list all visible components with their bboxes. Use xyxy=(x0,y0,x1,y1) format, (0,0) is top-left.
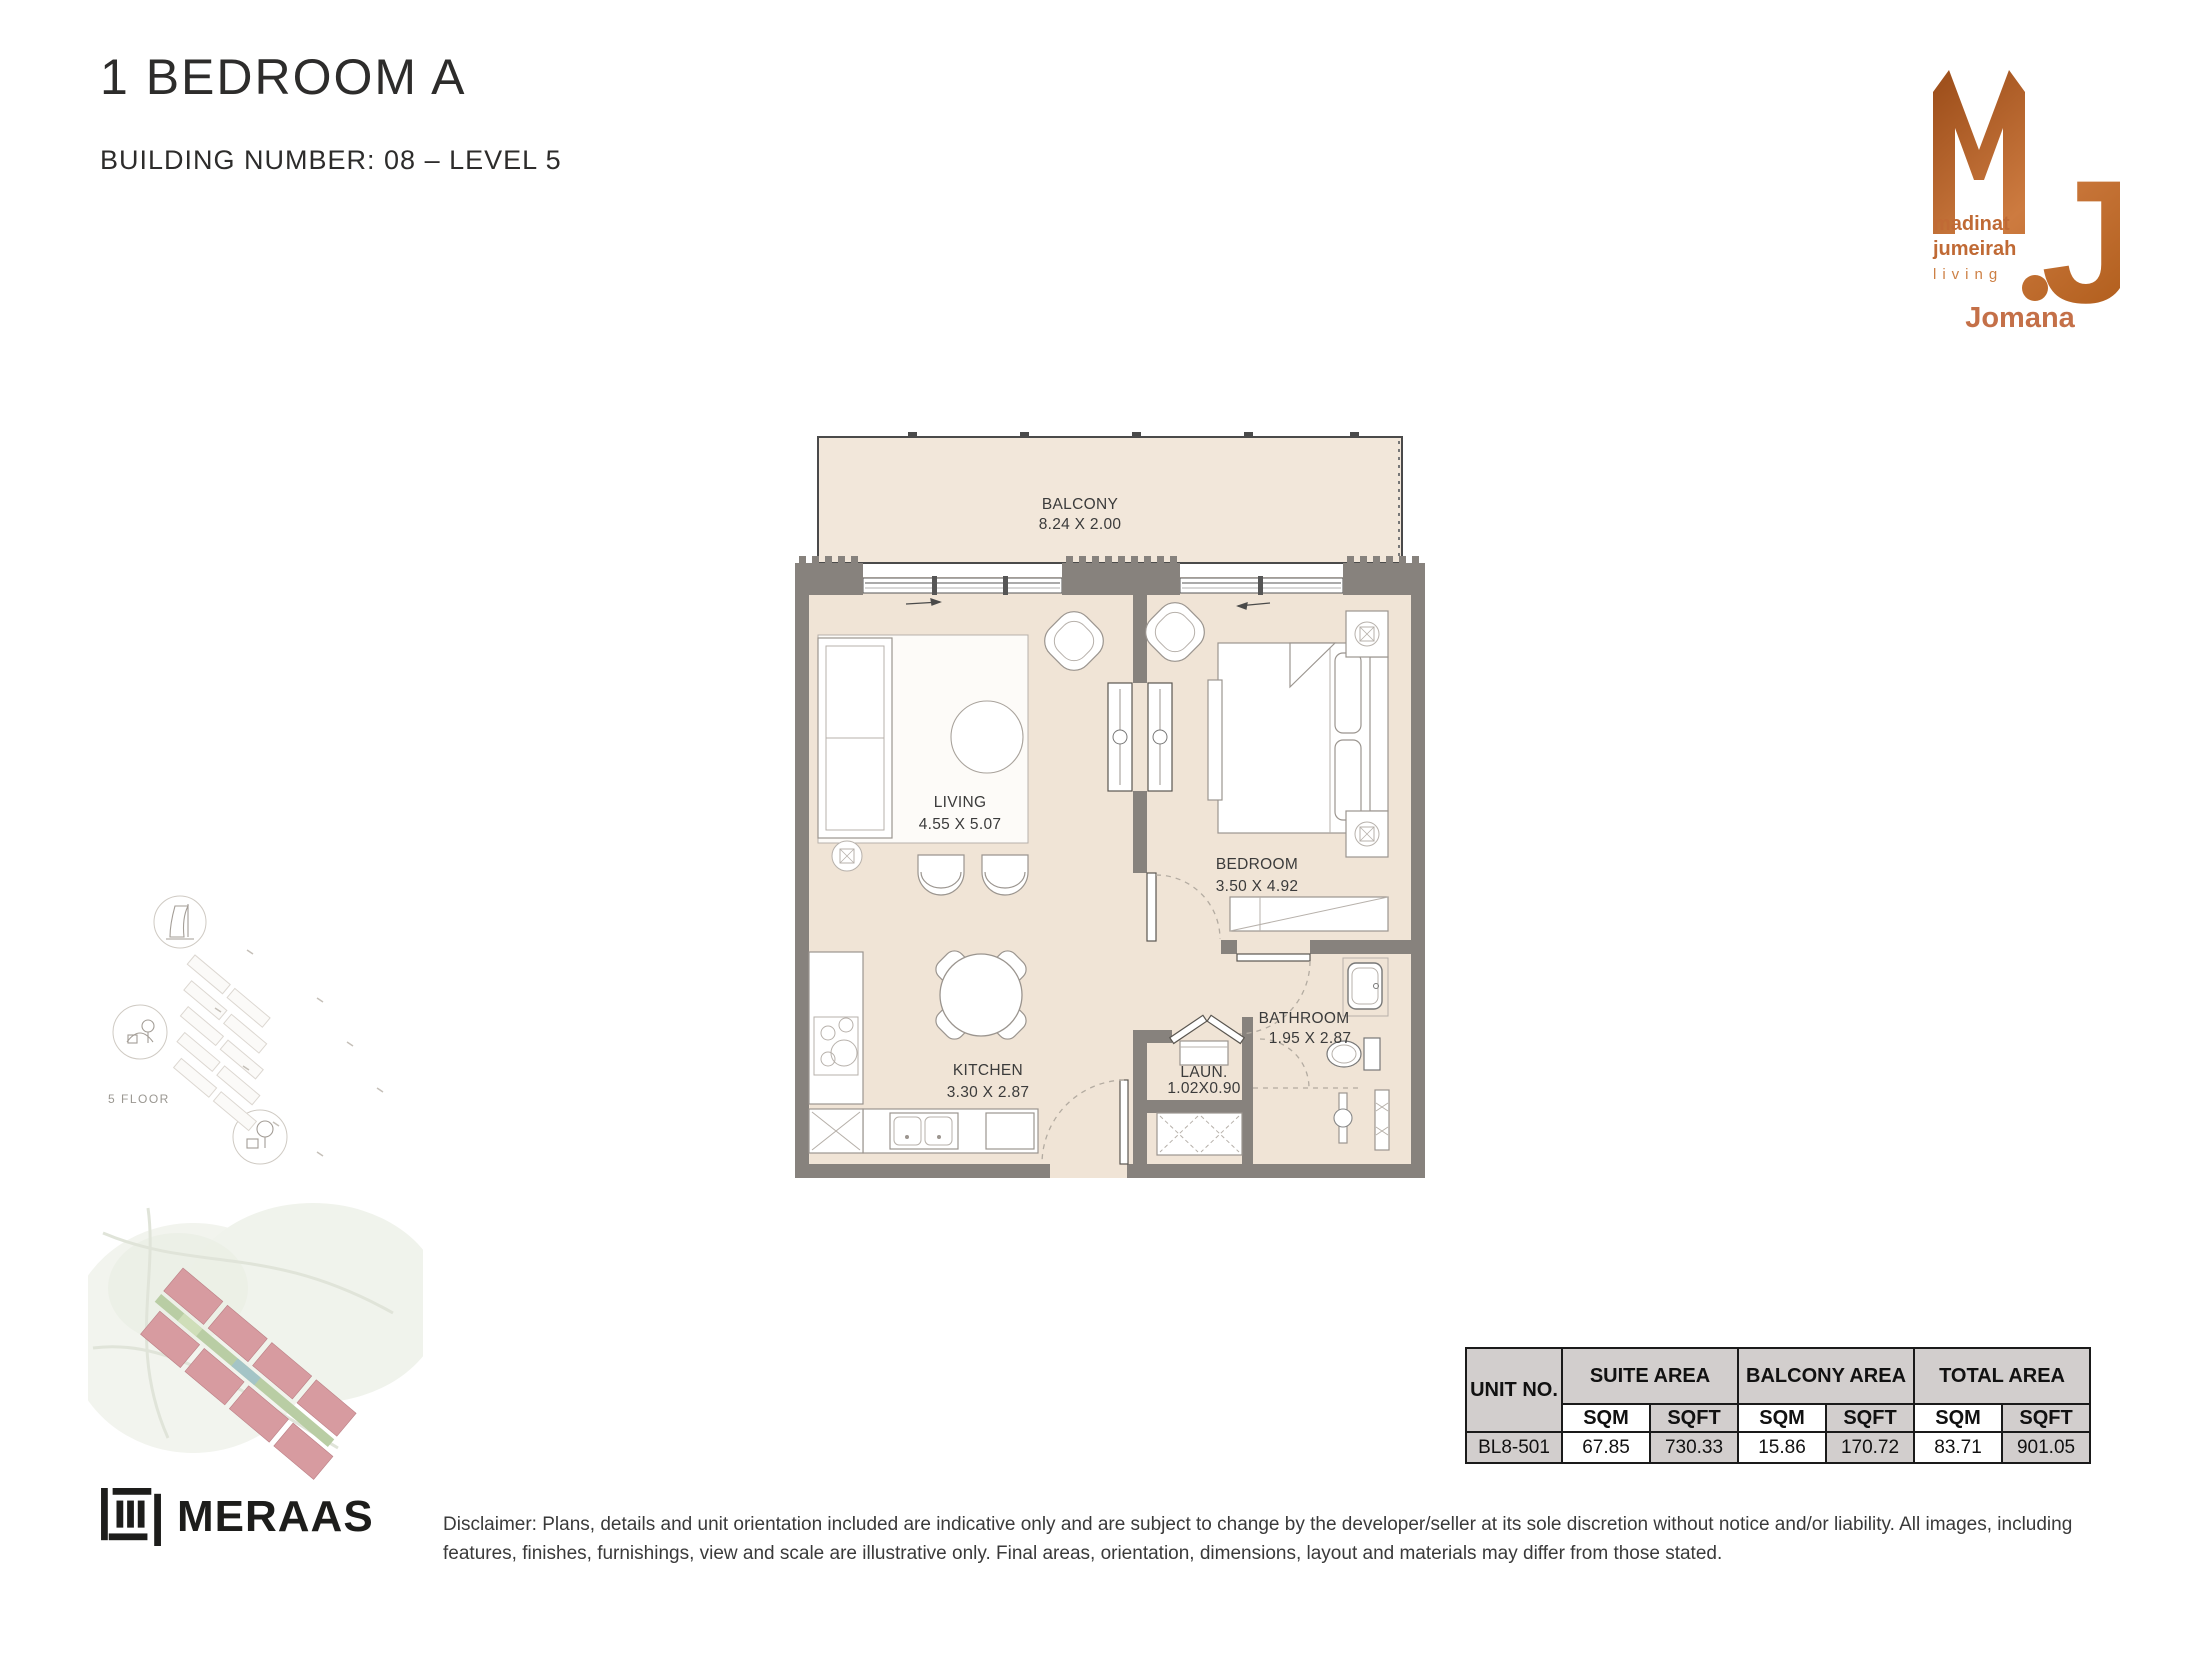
table-header-unit: UNIT NO. xyxy=(1466,1348,1562,1432)
balcony-sqft: 170.72 xyxy=(1826,1432,1914,1463)
project-name: Jomana xyxy=(1925,302,2115,335)
area-table: UNIT NO. SUITE AREA BALCONY AREA TOTAL A… xyxy=(1465,1347,2091,1464)
table-header-total: TOTAL AREA xyxy=(1914,1348,2090,1404)
table-header-balcony: BALCONY AREA xyxy=(1738,1348,1914,1404)
suite-sqm: 67.85 xyxy=(1562,1432,1650,1463)
balcony-area: BALCONY 8.24 X 2.00 xyxy=(818,432,1402,563)
table-subheader-sqft: SQFT xyxy=(2002,1404,2090,1432)
room-dims-bathroom: 1.95 X 2.87 xyxy=(1269,1030,1352,1047)
burj-al-arab-icon xyxy=(166,904,194,939)
landmark-icon xyxy=(127,1020,154,1043)
wardrobe xyxy=(1230,897,1388,931)
table-subheader-sqft: SQFT xyxy=(1826,1404,1914,1432)
table-subheader-sqm: SQM xyxy=(1738,1404,1826,1432)
unit-number: BL8-501 xyxy=(1466,1432,1562,1463)
suite-sqft: 730.33 xyxy=(1650,1432,1738,1463)
dining-table xyxy=(932,947,1030,1043)
developer-logo: MERAAS xyxy=(100,1488,374,1546)
key-plan-floor-label: 5 FLOOR xyxy=(108,1092,170,1106)
sofa xyxy=(818,638,892,838)
table-header-suite: SUITE AREA xyxy=(1562,1348,1738,1404)
table-row: BL8-501 67.85 730.33 15.86 170.72 83.71 … xyxy=(1466,1432,2090,1463)
wordmark-line-1: madinat xyxy=(1933,212,2016,237)
disclaimer-text: Disclaimer: Plans, details and unit orie… xyxy=(443,1511,2108,1568)
nightstand xyxy=(1346,611,1388,657)
washing-machine xyxy=(1157,1113,1242,1155)
developer-name: MERAAS xyxy=(177,1492,374,1542)
page-subtitle: BUILDING NUMBER: 08 – LEVEL 5 xyxy=(100,145,562,176)
brand-wordmark: madinat jumeirah living xyxy=(1933,212,2016,287)
brand-logo: J madinat jumeirah living Jomana xyxy=(1925,52,2120,352)
room-dims-bedroom: 3.50 X 4.92 xyxy=(1216,878,1299,895)
table-subheader-sqm: SQM xyxy=(1914,1404,2002,1432)
meraas-icon xyxy=(100,1488,162,1546)
nightstand xyxy=(1346,811,1388,857)
coffee-table xyxy=(951,701,1023,773)
page-title: 1 BEDROOM A xyxy=(100,48,467,106)
room-dims-kitchen: 3.30 X 2.87 xyxy=(947,1084,1030,1101)
room-label-bathroom: BATHROOM xyxy=(1259,1010,1350,1027)
ceiling-light-icon xyxy=(832,841,862,871)
room-label-bedroom: BEDROOM xyxy=(1216,856,1298,873)
table-subheader-sqft: SQFT xyxy=(1650,1404,1738,1432)
room-label-living: LIVING xyxy=(934,794,987,811)
svg-text:J: J xyxy=(2041,145,2120,312)
room-label-kitchen: KITCHEN xyxy=(953,1062,1023,1079)
total-sqm: 83.71 xyxy=(1914,1432,2002,1463)
balcony-sqm: 15.86 xyxy=(1738,1432,1826,1463)
room-dims-balcony: 8.24 X 2.00 xyxy=(1039,516,1122,533)
bathroom-sink xyxy=(1348,963,1382,1009)
level-key-plan: 5 FLOOR xyxy=(95,880,420,1185)
bed xyxy=(1208,643,1388,833)
floorplan-drawing: BALCONY 8.24 X 2.00 xyxy=(790,425,1440,1185)
site-map xyxy=(88,1188,423,1483)
room-dims-laundry: 1.02X0.90 xyxy=(1167,1080,1240,1097)
room-label-balcony: BALCONY xyxy=(1042,496,1118,513)
room-label-laundry: LAUN. xyxy=(1180,1064,1227,1081)
wordmark-line-2: jumeirah xyxy=(1933,237,2016,262)
total-sqft: 901.05 xyxy=(2002,1432,2090,1463)
room-dims-living: 4.55 X 5.07 xyxy=(919,816,1002,833)
table-subheader-sqm: SQM xyxy=(1562,1404,1650,1432)
key-plan-drawing xyxy=(95,880,420,1185)
wordmark-line-3: living xyxy=(1933,262,2016,287)
site-map-drawing xyxy=(88,1188,423,1483)
floorplan-sheet: 1 BEDROOM A BUILDING NUMBER: 08 – LEVEL … xyxy=(0,0,2205,1654)
